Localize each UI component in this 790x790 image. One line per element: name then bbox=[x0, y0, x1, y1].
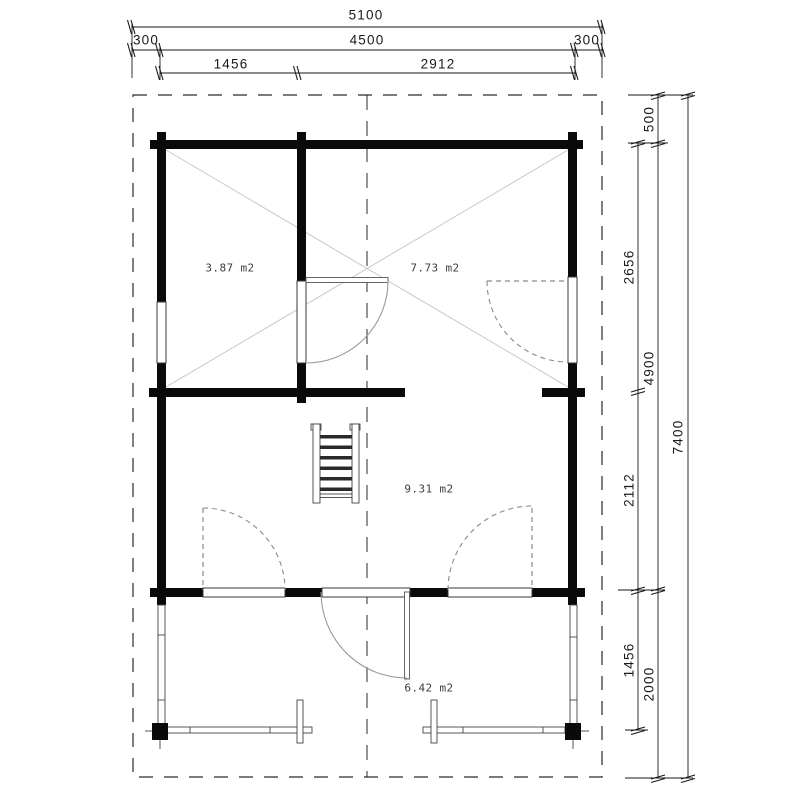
main-door-leaf bbox=[405, 592, 410, 679]
window-left-wall bbox=[157, 302, 166, 363]
dim-label-body-width: 4500 bbox=[350, 33, 385, 47]
interior-door-leaf bbox=[306, 278, 388, 283]
dim-label-total-width: 5100 bbox=[349, 8, 384, 22]
porch-rail-right bbox=[570, 605, 577, 725]
porch-baluster-right bbox=[431, 700, 437, 743]
porch-rail-front-left bbox=[167, 727, 312, 733]
area-label-porch: 6.42 m2 bbox=[404, 683, 453, 694]
porch-post-right bbox=[565, 723, 581, 740]
porch-rail-left bbox=[158, 605, 165, 727]
dim-label-left-span: 1456 bbox=[214, 57, 249, 71]
interior-door-swing-arc bbox=[306, 281, 388, 363]
dim-label-porch-depth: 1456 bbox=[622, 643, 636, 678]
dashed-door-bottom-right-arc bbox=[448, 506, 532, 590]
area-label-upper-left-room: 3.87 m2 bbox=[205, 263, 254, 274]
opening-interior-door bbox=[297, 281, 306, 363]
dim-label-total-height: 7400 bbox=[671, 420, 685, 455]
porch-rail-front-right bbox=[423, 727, 565, 733]
roof-outline-dashed bbox=[133, 95, 602, 777]
dim-label-left-overhang: 300 bbox=[133, 33, 159, 47]
opening-right-wall bbox=[568, 277, 577, 363]
floor-plan-drawing bbox=[0, 0, 790, 790]
dim-label-right-overhang: 300 bbox=[574, 33, 600, 47]
dashed-door-right-arc bbox=[487, 281, 568, 362]
dimension-lines-top bbox=[128, 20, 606, 80]
opening-bottom-left-door bbox=[203, 588, 285, 597]
floor-plan-canvas: 5100 300 4500 300 1456 2912 500 2656 490… bbox=[0, 0, 790, 790]
porch-baluster-left bbox=[297, 700, 303, 743]
opening-main-door bbox=[322, 588, 410, 597]
dashed-door-bottom-left-arc bbox=[203, 508, 285, 590]
dim-label-lower-room-depth: 2112 bbox=[622, 473, 636, 507]
opening-bottom-right-door bbox=[448, 588, 532, 597]
porch-post-left bbox=[152, 723, 168, 740]
dim-label-porch-overall: 2000 bbox=[642, 667, 656, 702]
main-door-swing-arc bbox=[321, 592, 407, 678]
dim-label-top-overhang: 500 bbox=[642, 106, 656, 132]
area-label-upper-right-room: 7.73 m2 bbox=[410, 263, 459, 274]
area-label-main-room: 9.31 m2 bbox=[404, 484, 453, 495]
doors bbox=[203, 278, 568, 680]
dim-label-upper-room-depth: 2656 bbox=[622, 250, 636, 285]
dim-label-right-span: 2912 bbox=[421, 57, 456, 71]
dim-label-inner-height: 4900 bbox=[642, 351, 656, 386]
staircase bbox=[311, 424, 360, 503]
